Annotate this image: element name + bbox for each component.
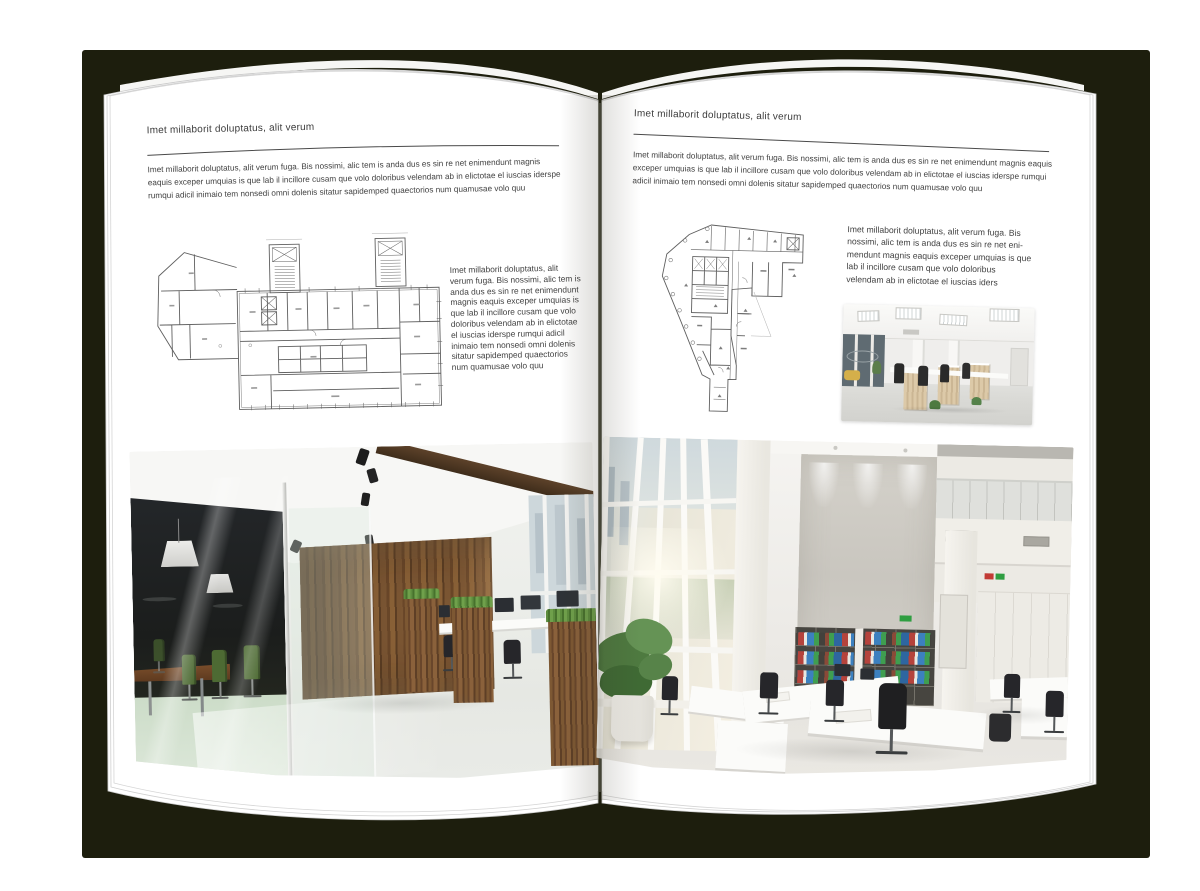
office-chair xyxy=(659,676,680,722)
plant-pot xyxy=(611,695,654,742)
floor-plan-left-drawing xyxy=(148,223,448,419)
ceiling-spot xyxy=(833,446,837,450)
office-chair xyxy=(962,363,970,379)
wood-cabinet xyxy=(970,363,990,399)
binder-row xyxy=(865,632,931,646)
binder-row xyxy=(798,632,854,646)
door xyxy=(938,594,968,669)
downlight-glow xyxy=(852,463,883,508)
left-caption-text: Imet millaborit doluptatus, alit verum f… xyxy=(450,262,584,373)
lounge-chair-yellow xyxy=(844,370,860,380)
floor-shadow xyxy=(977,705,1067,725)
floor-plan-right xyxy=(651,216,809,419)
downlight-glow xyxy=(808,462,839,507)
right-caption-text: Imet millaborit doluptatus, alit verum f… xyxy=(846,223,1035,289)
photo-office-wood-glass xyxy=(129,442,599,785)
leader-line xyxy=(751,292,772,336)
monitor xyxy=(834,664,850,676)
monitor xyxy=(556,590,578,606)
left-intro-paragraph: Imet millaborit doluptatus, alit verum f… xyxy=(147,155,566,203)
binder-row xyxy=(865,651,931,665)
ceiling-light-panel xyxy=(857,310,879,322)
office-chair xyxy=(501,640,524,688)
office-chair xyxy=(823,680,846,730)
photo-open-office-small xyxy=(841,304,1035,425)
right-page-title: Imet millaborit doluptatus, alit verum xyxy=(634,108,802,123)
wall-vent xyxy=(1023,536,1049,547)
left-page-title: Imet millaborit doluptatus, alit verum xyxy=(147,122,315,137)
office-chair xyxy=(918,366,928,386)
magazine-mockup: Imet millaborit doluptatus, alit verum I… xyxy=(0,0,1200,891)
ceiling-vent xyxy=(903,329,919,334)
left-page-content: Imet millaborit doluptatus, alit verum I… xyxy=(98,56,609,836)
wood-planter xyxy=(405,597,441,692)
office-chair xyxy=(757,672,780,722)
glass-balustrade xyxy=(936,478,1073,523)
monitor xyxy=(495,598,514,612)
ceiling-light-panel xyxy=(895,307,921,320)
floor-plan-left xyxy=(148,223,448,419)
floor-plan-right-drawing xyxy=(651,216,809,419)
right-intro-paragraph: Imet millaborit doluptatus, alit verum f… xyxy=(632,148,1053,197)
office-chair xyxy=(940,364,949,382)
plant xyxy=(872,361,881,374)
mezzanine-shadow-slot xyxy=(937,444,1073,459)
far-door xyxy=(1010,348,1029,386)
photo-bright-office xyxy=(596,437,1074,786)
floor-shadow xyxy=(736,736,967,767)
ceiling-spot xyxy=(903,448,907,452)
right-page-content: Imet millaborit doluptatus, alit verum I… xyxy=(592,55,1101,836)
office-chair xyxy=(894,363,904,383)
floor-shadow xyxy=(889,405,1009,415)
safety-sign-red xyxy=(985,573,994,579)
exit-sign xyxy=(996,574,1005,580)
downlight-glow xyxy=(896,464,927,509)
monitor xyxy=(521,595,541,609)
exit-sign xyxy=(900,615,912,621)
ceiling-light-panel xyxy=(989,308,1019,322)
ceiling-light-panel xyxy=(939,314,968,327)
plant xyxy=(971,397,981,405)
monitor xyxy=(860,668,874,679)
floor-shadow xyxy=(315,690,495,716)
